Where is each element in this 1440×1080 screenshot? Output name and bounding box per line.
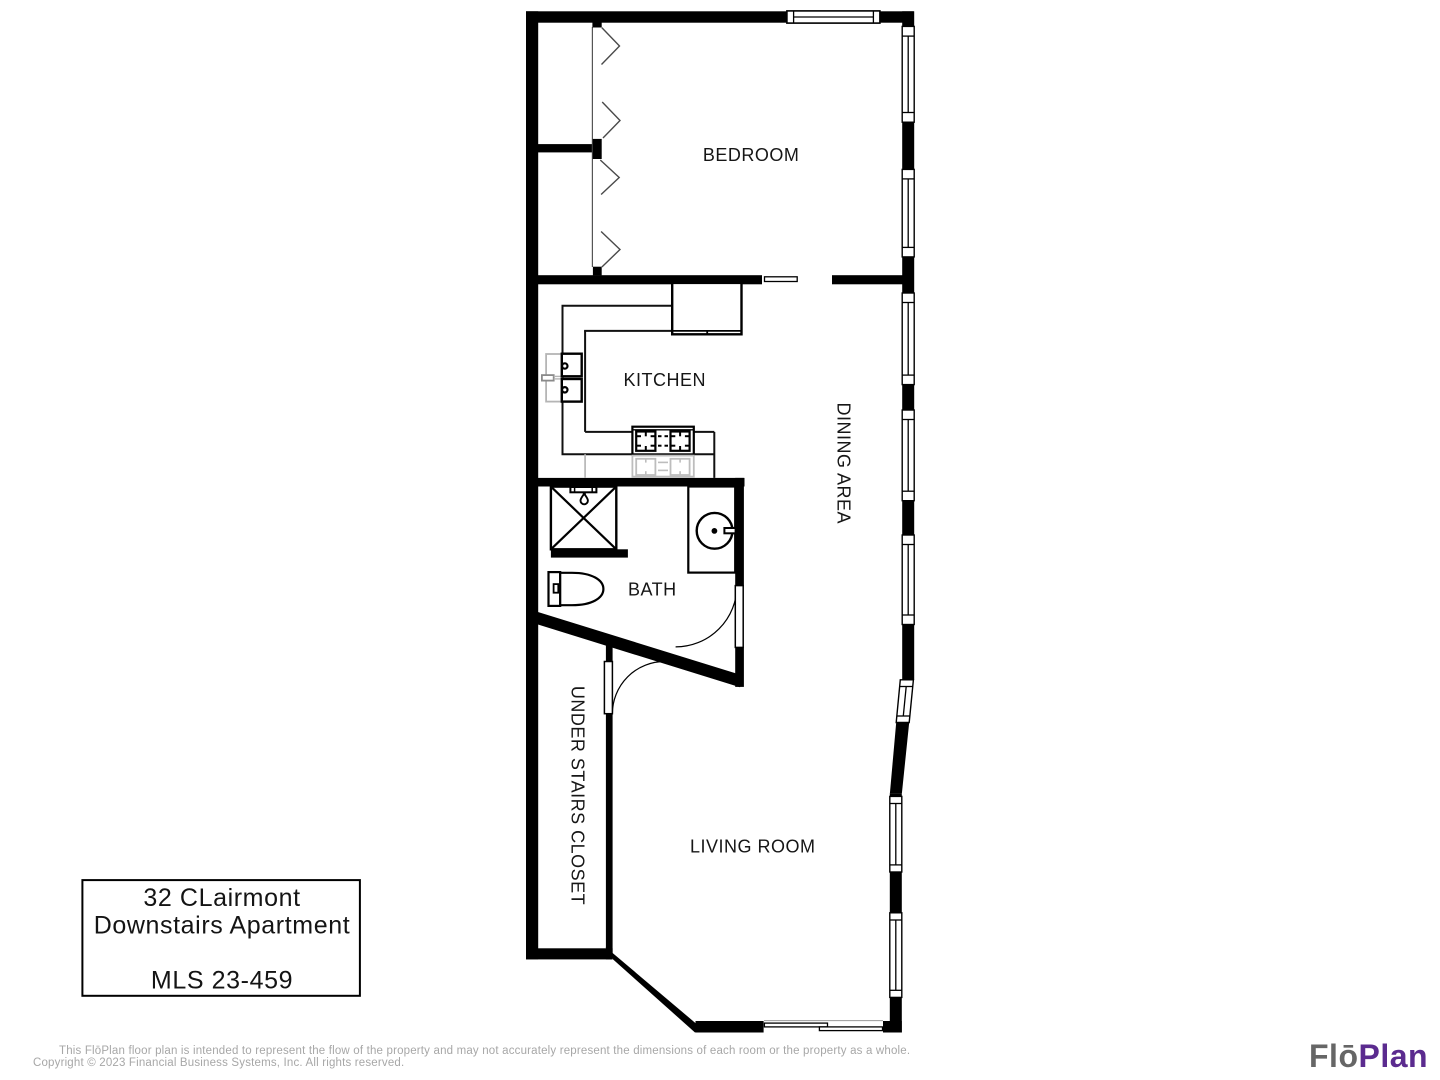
svg-text:This FlōPlan floor plan is int: This FlōPlan floor plan is intended to r… xyxy=(59,1045,910,1057)
svg-text:LIVING ROOM: LIVING ROOM xyxy=(690,836,816,856)
svg-text:32 CLairmont: 32 CLairmont xyxy=(143,884,300,912)
svg-text:BATH: BATH xyxy=(628,579,677,599)
svg-text:KITCHEN: KITCHEN xyxy=(624,370,707,390)
svg-text:DINING AREA: DINING AREA xyxy=(833,403,853,525)
svg-text:Downstairs Apartment: Downstairs Apartment xyxy=(94,911,351,939)
svg-text:UNDER STAIRS CLOSET: UNDER STAIRS CLOSET xyxy=(568,686,588,905)
svg-text:FlōPlan: FlōPlan xyxy=(1309,1038,1428,1074)
svg-text:BEDROOM: BEDROOM xyxy=(703,145,800,165)
svg-text:Copyright © 2023 Financial Bus: Copyright © 2023 Financial Business Syst… xyxy=(33,1057,404,1069)
svg-text:MLS 23-459: MLS 23-459 xyxy=(151,967,293,995)
